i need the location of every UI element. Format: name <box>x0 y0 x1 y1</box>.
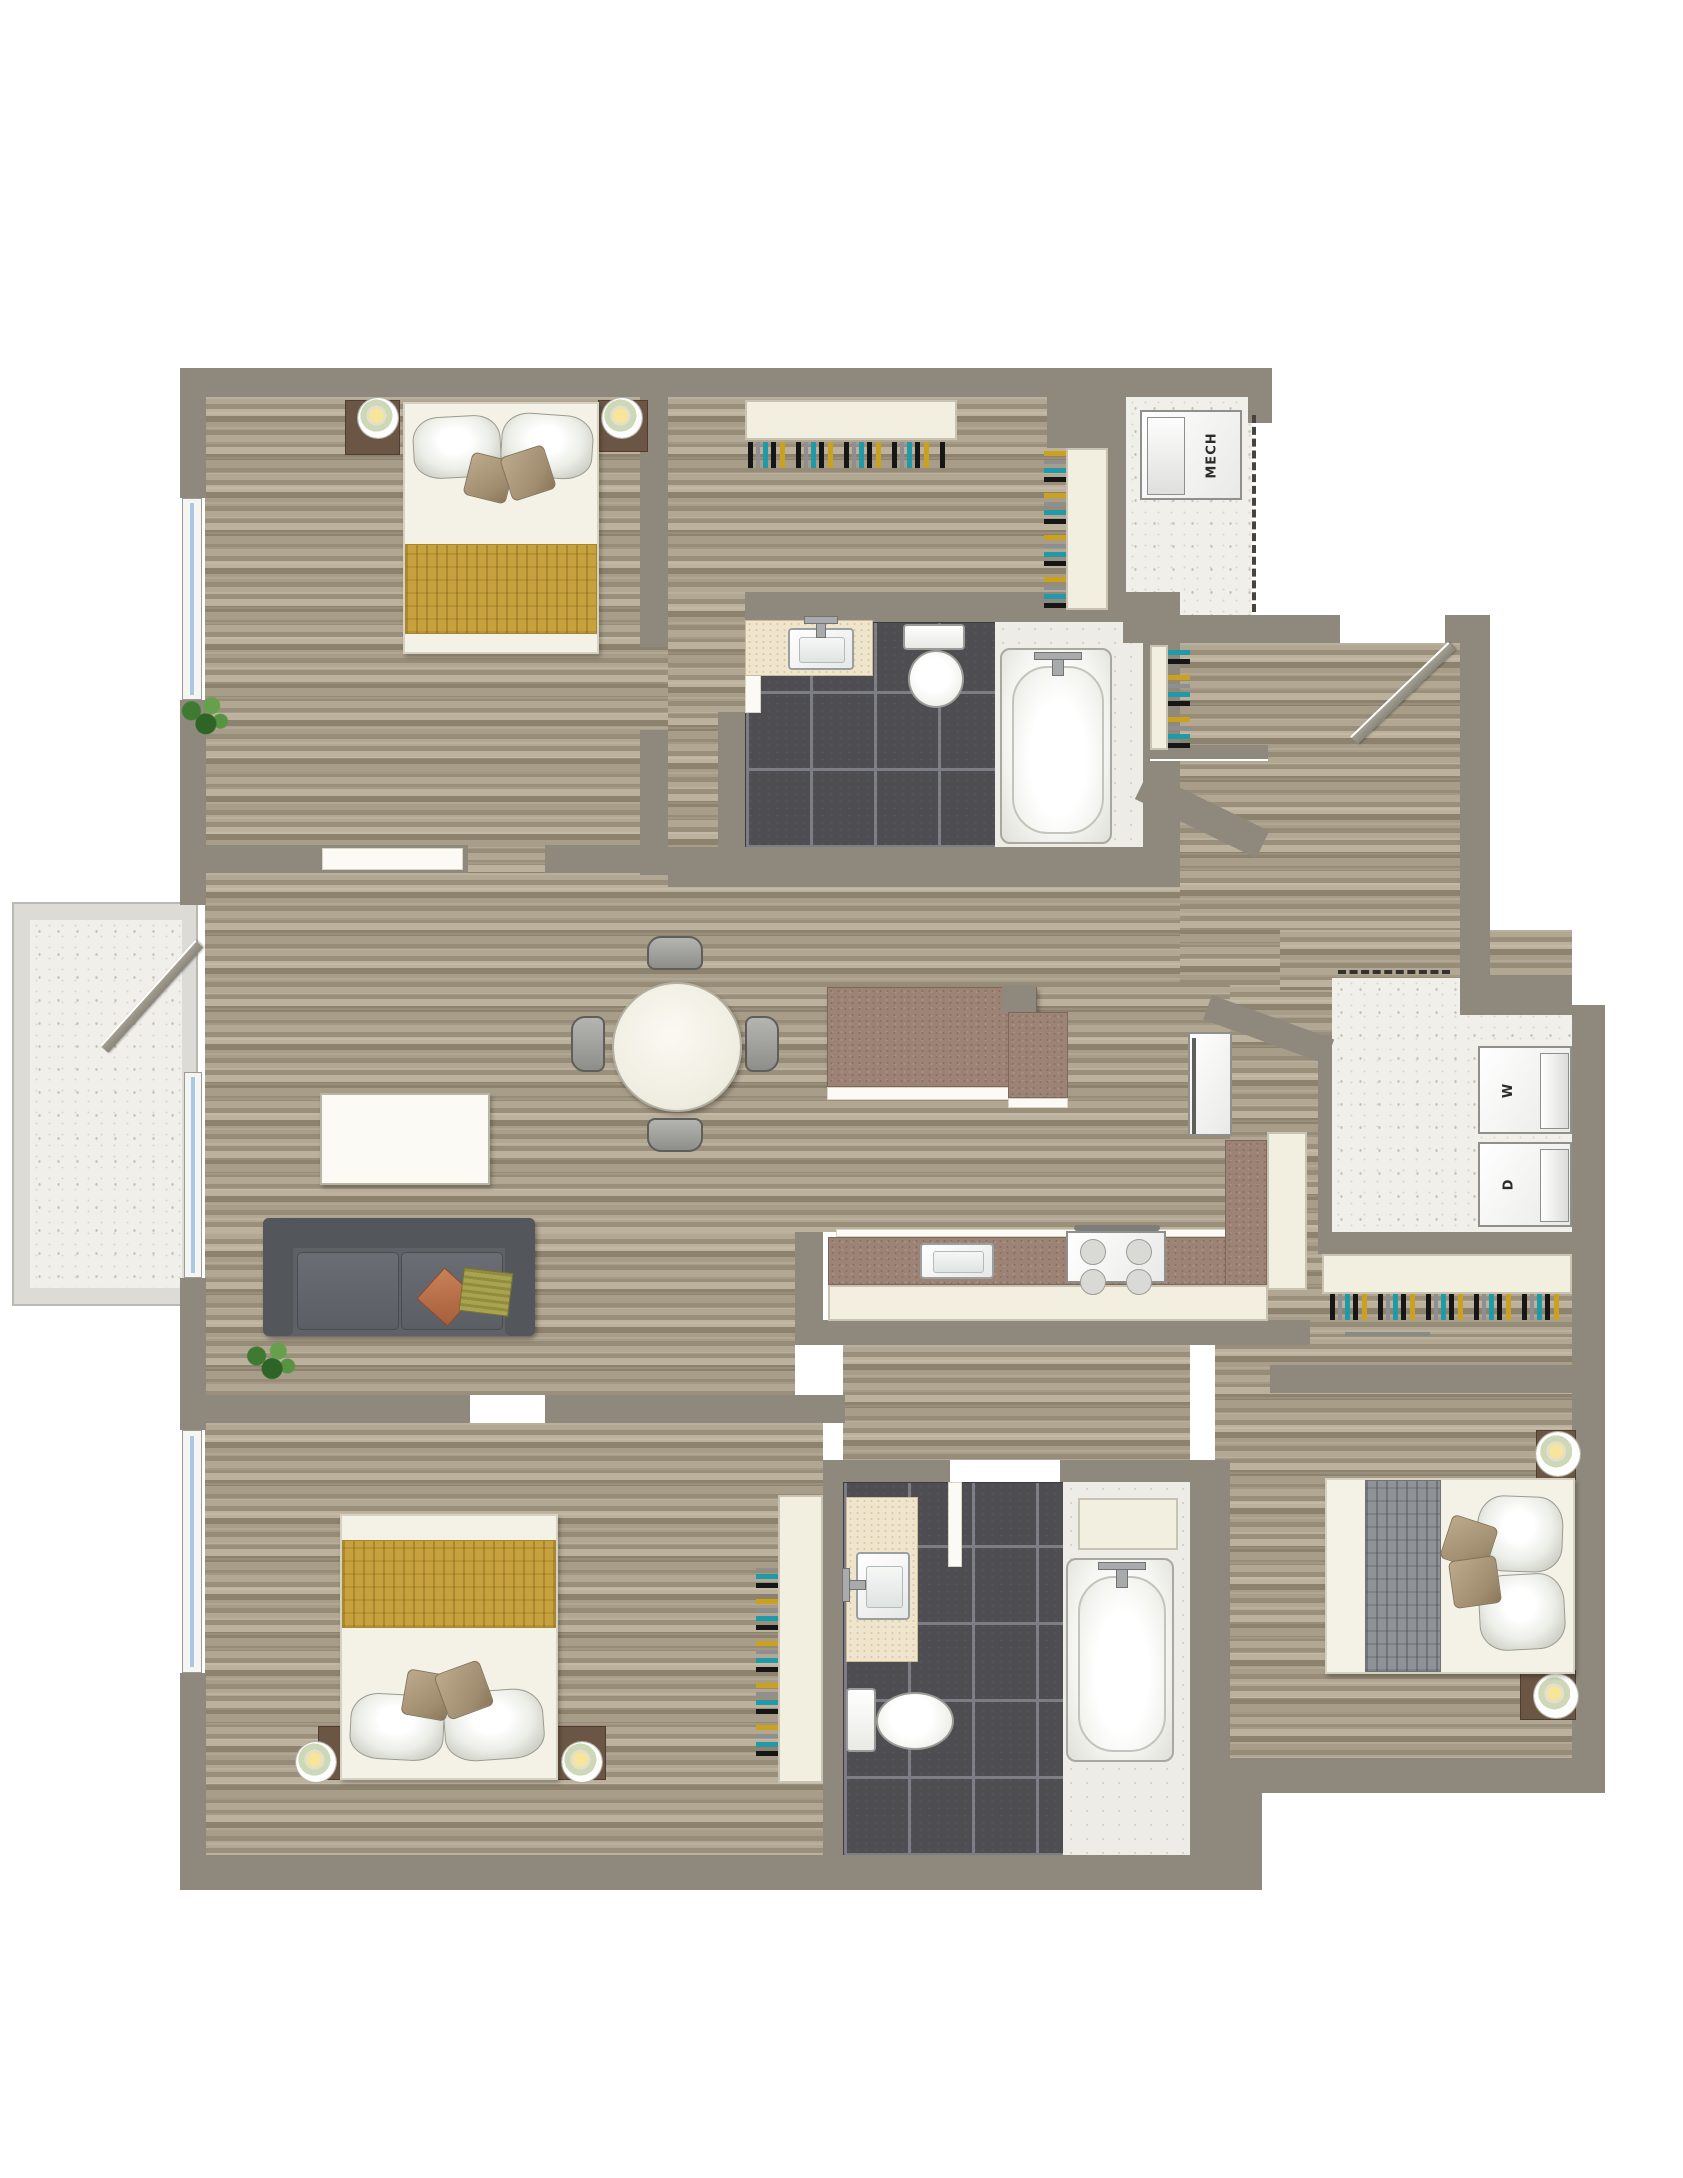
wall-bathroom2-west <box>823 1460 843 1855</box>
wall-left-d <box>180 1673 206 1855</box>
sofa <box>263 1218 535 1336</box>
dining-chair-north <box>647 936 703 970</box>
wall-bedroom2-north-b <box>545 1395 845 1423</box>
kitchen-counter-bottom <box>828 1237 1268 1285</box>
kitchen-wall-nub <box>1002 985 1036 1012</box>
mech-closet-dashed-opening <box>1252 415 1256 612</box>
bathroom2-bathtub <box>1066 1558 1174 1762</box>
wall-bathroom1-south <box>668 847 1180 887</box>
bathroom2-bathtub-basin <box>1078 1576 1166 1752</box>
mech-label: MECH <box>1184 412 1240 498</box>
bathroom1-tub-handles <box>1034 652 1082 660</box>
wall-closet-east-side <box>1108 397 1126 615</box>
wall-left-a <box>180 397 206 498</box>
bedroom1-lamp-right <box>602 398 642 438</box>
coat-closet-hangers <box>1168 648 1190 748</box>
stove-burner-1 <box>1080 1239 1106 1265</box>
media-console-edge <box>827 1087 1037 1100</box>
wall-east-lower <box>1572 1005 1605 1758</box>
wall-bedroom3-west-stub <box>1230 1793 1262 1855</box>
bedroom1-wall-shelf <box>322 848 463 870</box>
wall-bathroom2-east <box>1190 1460 1230 1855</box>
washer-door <box>1540 1053 1569 1129</box>
kitchen-cabinet-face-bottom <box>828 1285 1268 1321</box>
bathroom1-toilet-tank <box>903 624 965 650</box>
dryer-door <box>1540 1149 1569 1222</box>
wall-bathroom2-north-b <box>1060 1460 1190 1482</box>
bathroom1-bathtub <box>1000 648 1112 844</box>
hall-closet-shelf <box>1322 1254 1572 1294</box>
kitchen-counter-top-edge <box>836 1229 1260 1237</box>
bedroom2-lamp-left <box>296 1742 336 1782</box>
closet-east-hangers <box>1044 450 1066 608</box>
kitchen-counter-right <box>1225 1140 1267 1285</box>
bedroom1-blanket <box>405 544 597 634</box>
mech-unit-door <box>1147 417 1185 495</box>
wall-left-c <box>180 1278 206 1430</box>
wall-bathroom2-north-a <box>843 1460 950 1482</box>
bedroom1-plant <box>174 690 232 742</box>
stove-burner-3 <box>1080 1269 1106 1295</box>
hall-closet-hangers <box>1330 1294 1564 1320</box>
wall-bedroom2-north-a <box>205 1395 470 1423</box>
bathroom1-faucet-handles <box>804 616 838 624</box>
balcony-window <box>184 1072 202 1278</box>
mech-unit: MECH <box>1140 410 1242 500</box>
coffee-table <box>320 1093 490 1185</box>
dining-chair-east <box>745 1016 779 1072</box>
bedroom3-bed <box>1325 1478 1575 1674</box>
stove-grate <box>1074 1225 1160 1231</box>
bathroom2-faucet-handles <box>842 1568 850 1602</box>
wall-closet-east-top <box>1047 397 1108 448</box>
bathroom1-toilet-bowl <box>908 650 964 708</box>
walkin-closet-shelf <box>745 400 957 440</box>
bedroom3-blanket <box>1365 1480 1441 1672</box>
bathroom2-toilet-tank <box>846 1688 876 1752</box>
corridor2-floor <box>843 1345 1190 1460</box>
bathroom1-bathtub-basin <box>1012 666 1104 834</box>
floor-plan-canvas: MECH W D <box>0 0 1683 2178</box>
hall-closet-rod <box>1345 1332 1430 1336</box>
wall-laundry-west <box>1318 1035 1332 1235</box>
bedroom1-lamp-left <box>358 398 398 438</box>
wall-bedroom1-south-b <box>545 845 668 873</box>
washer-label: W <box>1480 1048 1538 1132</box>
wall-top <box>180 368 1272 397</box>
dining-chair-south <box>647 1118 703 1152</box>
bedroom3-accent-pillow-2 <box>1448 1555 1502 1609</box>
bedroom1-bed <box>403 402 599 654</box>
wall-east-mid <box>1460 640 1490 985</box>
sofa-pillow-olive <box>459 1267 514 1317</box>
washer-unit: W <box>1478 1046 1572 1134</box>
wall-bottom <box>180 1855 1262 1890</box>
stove-burner-2 <box>1126 1239 1152 1265</box>
bedroom2-lamp-right <box>562 1742 602 1782</box>
refrigerator-handle <box>1192 1038 1196 1134</box>
stove <box>1066 1231 1166 1283</box>
bedroom3-lamp-bottom <box>1534 1674 1578 1718</box>
dining-table <box>612 982 742 1112</box>
wall-east-jog <box>1460 975 1572 1015</box>
wall-hall-north-b <box>1445 615 1490 643</box>
closet-east-panel <box>1066 448 1108 610</box>
kitchen-counter-upper <box>1008 1012 1068 1098</box>
bedroom2-closet-hangers <box>756 1568 778 1756</box>
dryer-unit: D <box>1478 1142 1572 1227</box>
dining-chair-west <box>571 1016 605 1072</box>
wall-kitchen-south <box>795 1320 1310 1345</box>
dryer-label: D <box>1480 1144 1538 1225</box>
bedroom2-window <box>182 1430 202 1673</box>
wall-bedroom3-north <box>1270 1365 1572 1393</box>
bedroom2-blanket <box>342 1540 556 1628</box>
bathroom2-tub-handles <box>1098 1562 1146 1570</box>
kitchen-cabinet-face-right <box>1267 1132 1307 1290</box>
kitchen-counter-upper-edge <box>1008 1098 1068 1108</box>
living-plant <box>238 1336 300 1386</box>
bathroom2-toilet-bowl <box>876 1692 954 1750</box>
sofa-back <box>263 1218 535 1248</box>
bathroom2-tub-shelf <box>1078 1498 1178 1550</box>
wall-hall-north-a <box>1255 615 1340 643</box>
coat-closet-panel <box>1150 645 1168 750</box>
stove-burner-4 <box>1126 1269 1152 1295</box>
bedroom3-lamp-top <box>1536 1432 1580 1476</box>
balcony-floor <box>30 920 182 1288</box>
wall-bathroom1-west <box>718 712 745 847</box>
bedroom2-bed <box>340 1514 558 1780</box>
kitchen-sink <box>920 1243 994 1279</box>
walkin-closet-hangers <box>748 442 948 468</box>
bedroom2-closet-panel <box>778 1495 823 1783</box>
laundry-dashed-opening <box>1338 970 1450 974</box>
refrigerator <box>1188 1032 1232 1136</box>
sofa-cushion-left <box>297 1252 399 1330</box>
bathroom2-door <box>948 1482 962 1567</box>
sofa-arm-left <box>263 1218 293 1336</box>
wall-bedroom3-south <box>1230 1758 1605 1793</box>
bedroom1-window <box>182 498 202 700</box>
wall-laundry-south <box>1318 1232 1575 1254</box>
